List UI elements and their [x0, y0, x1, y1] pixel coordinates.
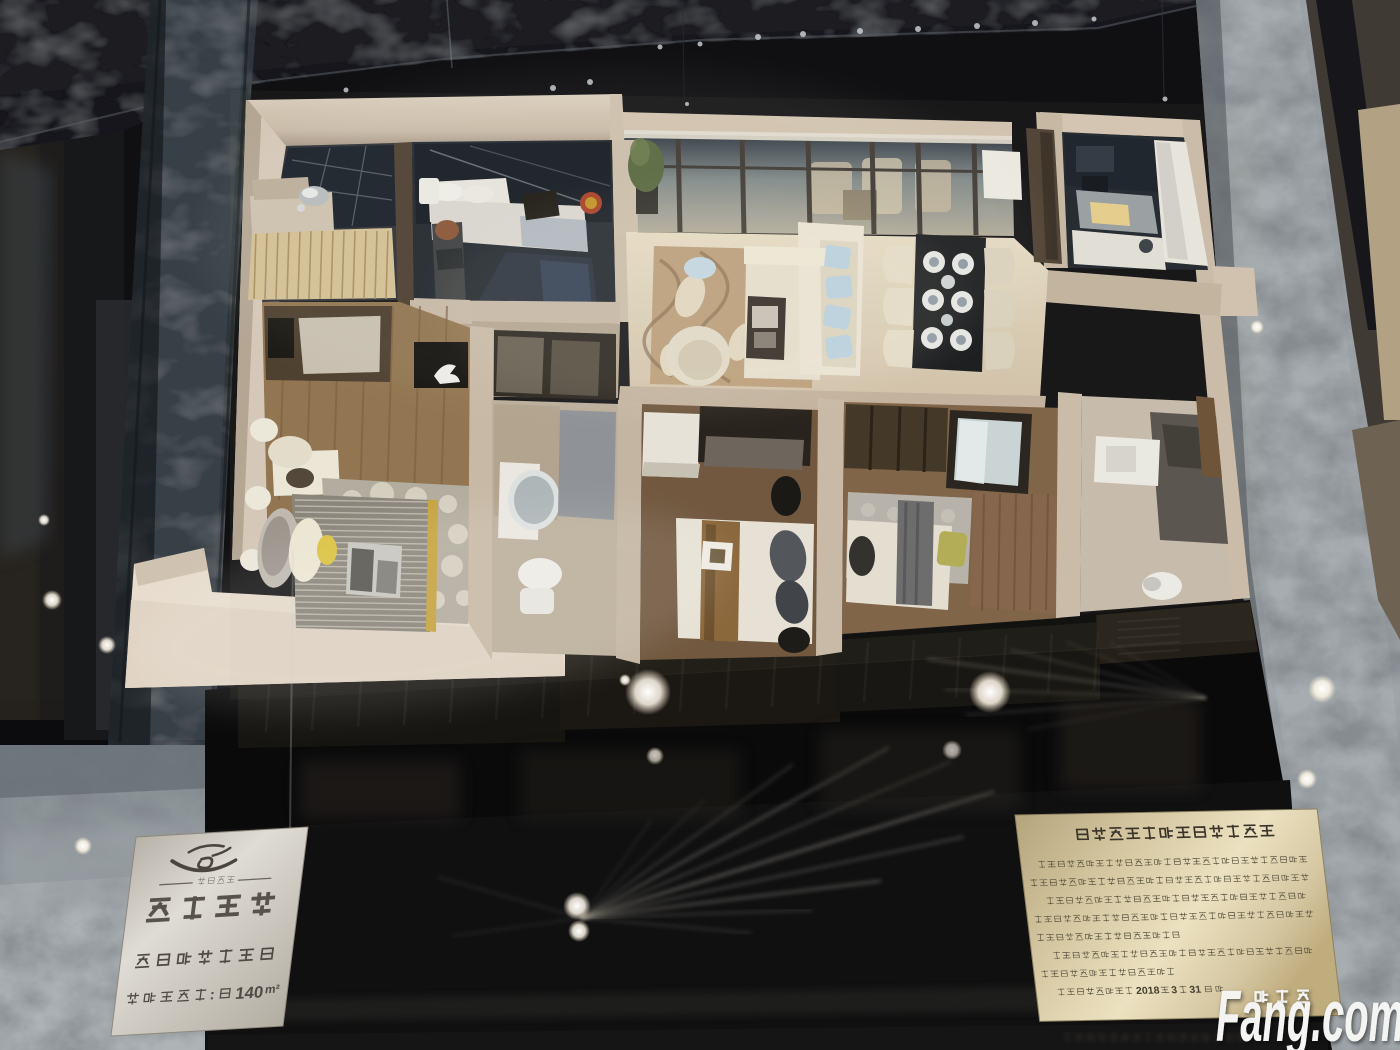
svg-text:Fang.com: Fang.com: [1216, 977, 1400, 1050]
svg-text:140: 140: [234, 983, 264, 1003]
svg-text:31: 31: [1189, 985, 1202, 996]
svg-text:m²: m²: [264, 983, 280, 997]
svg-text:2018: 2018: [1135, 986, 1160, 997]
